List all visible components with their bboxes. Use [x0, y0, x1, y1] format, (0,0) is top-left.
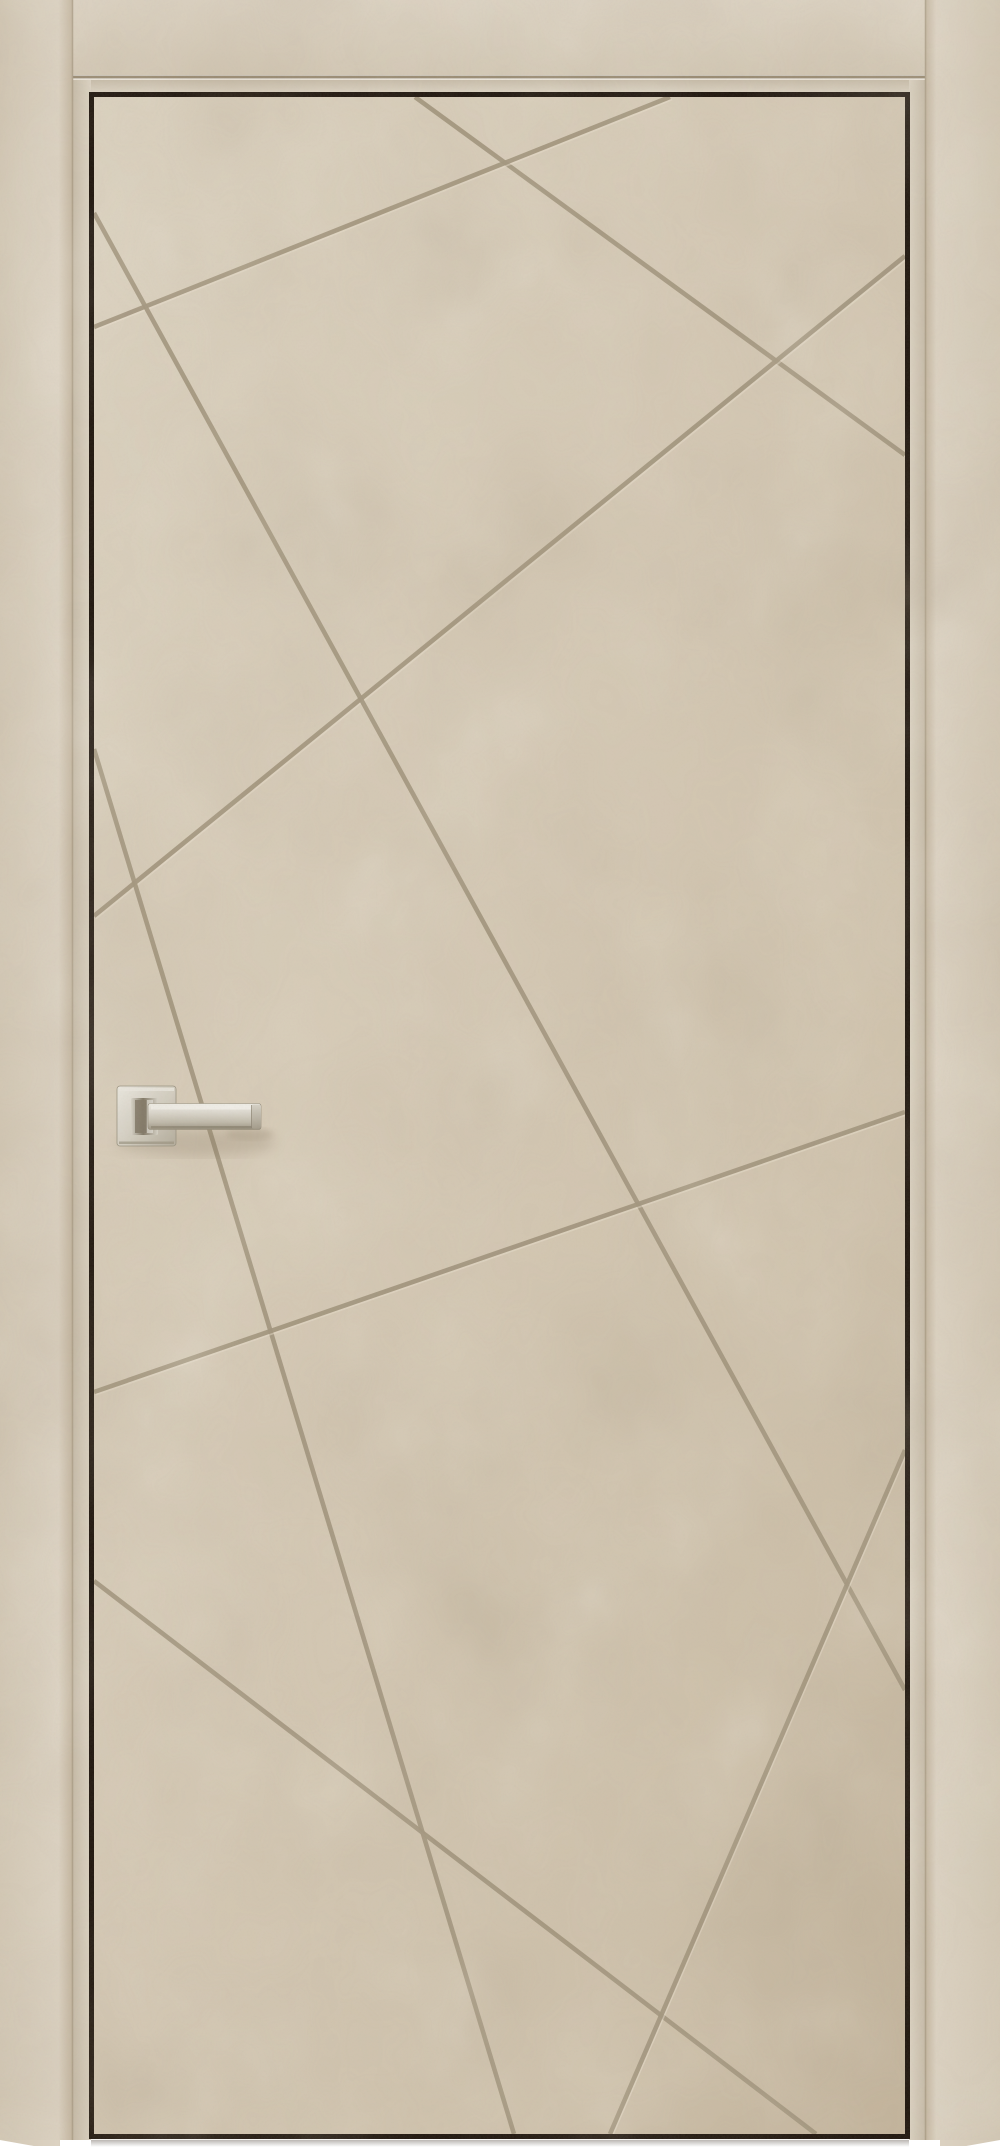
door-product-photo	[0, 0, 1000, 2151]
under-door-shadow	[91, 2140, 909, 2147]
concrete-texture-overlay	[0, 0, 1000, 2140]
door-scene	[0, 0, 1000, 2151]
